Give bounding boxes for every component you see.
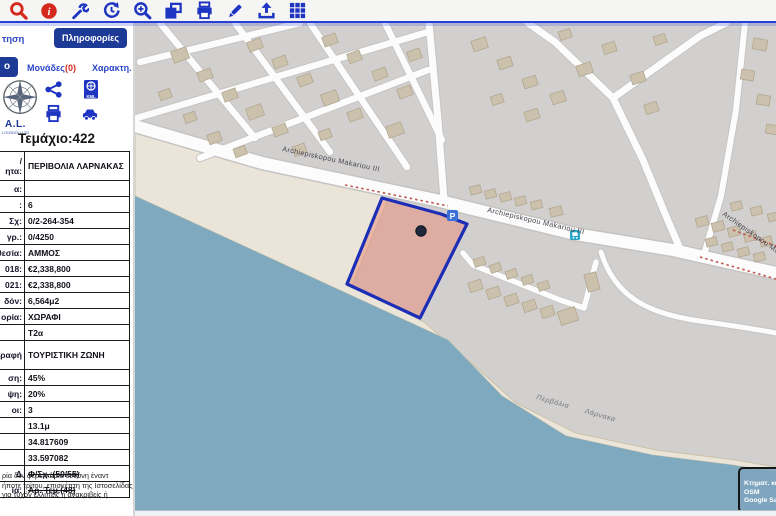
table-row-label: : — [0, 196, 25, 213]
table-row-value: 3 — [24, 401, 130, 418]
table-row-value: ΧΩΡΑΦΙ — [24, 308, 130, 325]
print-button[interactable] — [192, 1, 216, 21]
disclaimer-text: ρία δεν φέρει καμία ευθύνη έναντήποτε τρ… — [2, 471, 135, 500]
info-button[interactable]: i — [37, 1, 61, 21]
kml-file-icon: KML — [82, 79, 100, 99]
bottom-strip — [135, 510, 776, 516]
table-row-label: / ητα: — [0, 151, 25, 181]
share-icon — [44, 80, 63, 99]
table-row-label: 018: — [0, 260, 25, 277]
table-row-value: 34.817609 — [24, 433, 130, 450]
table-row: 018:€2,338,800 — [0, 260, 133, 277]
layer-option-google-satellite[interactable]: Google Sa — [744, 497, 776, 506]
table-row-value: 20% — [24, 385, 130, 402]
parcel-title: Τεμάχιο:422 — [18, 131, 95, 146]
table-row-value: €2,338,800 — [24, 276, 130, 293]
table-row-value: ΠΕΡΙΒΟΛΙΑ ΛΑΡΝΑΚΑΣ — [24, 151, 130, 181]
table-row-value: T2α — [24, 324, 130, 341]
tab-parcel-partial[interactable]: ο — [0, 57, 18, 77]
table-row-label — [0, 433, 25, 450]
table-row-value: 45% — [24, 369, 130, 386]
table-row-label: 021: — [0, 276, 25, 293]
disclaimer-line: ήποτε τρίτου, επισκέπτη της Ιστοσελίδας — [2, 481, 135, 491]
grid-button[interactable] — [285, 1, 309, 21]
map-canvas[interactable]: P Archiepiskopou Makariou III Archiepisk… — [135, 23, 776, 516]
upload-button[interactable] — [254, 1, 278, 21]
table-row-label: ση: — [0, 369, 25, 386]
table-row: ραφήΤΟΥΡΙΣΤΙΚΗ ΖΩΝΗ — [0, 340, 133, 370]
app-window: i — [0, 0, 776, 516]
layer-option-cadastral[interactable]: Κτηματ. κα — [744, 480, 776, 489]
wrench-icon — [71, 2, 89, 20]
table-row: :6 — [0, 196, 133, 213]
search-button[interactable] — [6, 1, 30, 21]
table-row: α: — [0, 180, 133, 197]
table-row: ψη:20% — [0, 385, 133, 402]
info-sidebar: τηση Πληροφορίες ο Μονάδες(0) Χαρακτη. A… — [0, 23, 135, 516]
table-row: ση:45% — [0, 369, 133, 386]
parcel-marker-dot[interactable] — [416, 226, 426, 236]
company-logo-text: A.L. — [5, 119, 26, 130]
layer-switcher[interactable]: Κτηματ. κα OSM Google Sa — [738, 467, 776, 513]
parking-icon: P — [447, 210, 458, 221]
tab-units[interactable]: Μονάδες(0) — [27, 63, 76, 73]
table-row-value: 0/4250 — [24, 228, 130, 245]
toolbar: i — [0, 0, 776, 23]
table-row-label — [0, 417, 25, 434]
svg-text:KML: KML — [86, 94, 96, 99]
table-row: οι:3 — [0, 401, 133, 418]
units-count-badge: (0) — [65, 63, 76, 73]
search-icon — [9, 1, 28, 20]
share-button[interactable] — [42, 79, 64, 99]
table-row: / ητα:ΠΕΡΙΒΟΛΙΑ ΛΑΡΝΑΚΑΣ — [0, 151, 133, 181]
table-row-label: θεσία: — [0, 244, 25, 261]
pencil-icon — [226, 2, 244, 20]
table-row-label: δόν: — [0, 292, 25, 309]
table-row: 13.1μ — [0, 417, 133, 434]
table-row-label: Σχ: — [0, 212, 25, 229]
table-row: 021:€2,338,800 — [0, 276, 133, 293]
property-table: / ητα:ΠΕΡΙΒΟΛΙΑ ΛΑΡΝΑΚΑΣα::6Σχ:0/2-264-3… — [0, 152, 133, 498]
table-row-label: γρ.: — [0, 228, 25, 245]
printer-icon — [44, 104, 63, 123]
table-row: ορία:ΧΩΡΑΦΙ — [0, 308, 133, 325]
table-row-label — [0, 449, 25, 466]
info-icon: i — [40, 2, 58, 20]
table-row-value: ΑΜΜΟΣ — [24, 244, 130, 261]
wrench-button[interactable] — [68, 1, 92, 21]
upload-icon — [257, 1, 276, 20]
disclaimer-line: ρία δεν φέρει καμία ευθύνη έναντ — [2, 471, 135, 481]
table-row-label: ραφή — [0, 340, 25, 370]
history-icon — [102, 1, 121, 20]
table-row: 34.817609 — [0, 433, 133, 450]
table-row-value: 0/2-264-354 — [24, 212, 130, 229]
tab-characteristics[interactable]: Χαρακτη. — [92, 63, 132, 73]
table-row-label: α: — [0, 180, 25, 197]
table-row-value: 6,564μ2 — [24, 292, 130, 309]
table-row: T2α — [0, 324, 133, 341]
company-logo-compass-icon — [0, 76, 42, 122]
layer-option-osm[interactable]: OSM — [744, 489, 776, 498]
car-icon — [80, 104, 100, 123]
svg-text:P: P — [450, 211, 456, 221]
directions-button[interactable] — [79, 103, 101, 123]
table-row: Σχ:0/2-264-354 — [0, 212, 133, 229]
copy-icon — [164, 1, 183, 20]
table-row-value: ΤΟΥΡΙΣΤΙΚΗ ΖΩΝΗ — [24, 340, 130, 370]
table-row-value — [24, 180, 130, 197]
edit-button[interactable] — [223, 1, 247, 21]
table-row-value: 33.597082 — [24, 449, 130, 466]
disclaimer-line: για τυχόν ελλιπείς ή ανακριβείς ή — [2, 490, 135, 500]
table-row: θεσία:ΑΜΜΟΣ — [0, 244, 133, 261]
zoom-in-icon — [133, 1, 152, 20]
table-row-label: οι: — [0, 401, 25, 418]
sidebar-print-button[interactable] — [42, 103, 64, 123]
table-row: 33.597082 — [0, 449, 133, 466]
tab-row-1: τηση Πληροφορίες — [0, 27, 133, 51]
table-row-value: 13.1μ — [24, 417, 130, 434]
table-row-value: 6 — [24, 196, 130, 213]
copy-button[interactable] — [161, 1, 185, 21]
grid-icon — [288, 1, 307, 20]
zoom-in-button[interactable] — [130, 1, 154, 21]
tab-search-partial[interactable]: τηση — [2, 34, 24, 45]
tab-information[interactable]: Πληροφορίες — [54, 28, 127, 48]
kml-export-button[interactable]: KML — [80, 79, 102, 99]
table-row-label: ορία: — [0, 308, 25, 325]
table-row-value: €2,338,800 — [24, 260, 130, 277]
table-row-label — [0, 324, 25, 341]
table-row: γρ.:0/4250 — [0, 228, 133, 245]
history-button[interactable] — [99, 1, 123, 21]
table-row: δόν:6,564μ2 — [0, 292, 133, 309]
svg-text:i: i — [48, 6, 51, 18]
print-icon — [195, 1, 214, 20]
table-row-label: ψη: — [0, 385, 25, 402]
